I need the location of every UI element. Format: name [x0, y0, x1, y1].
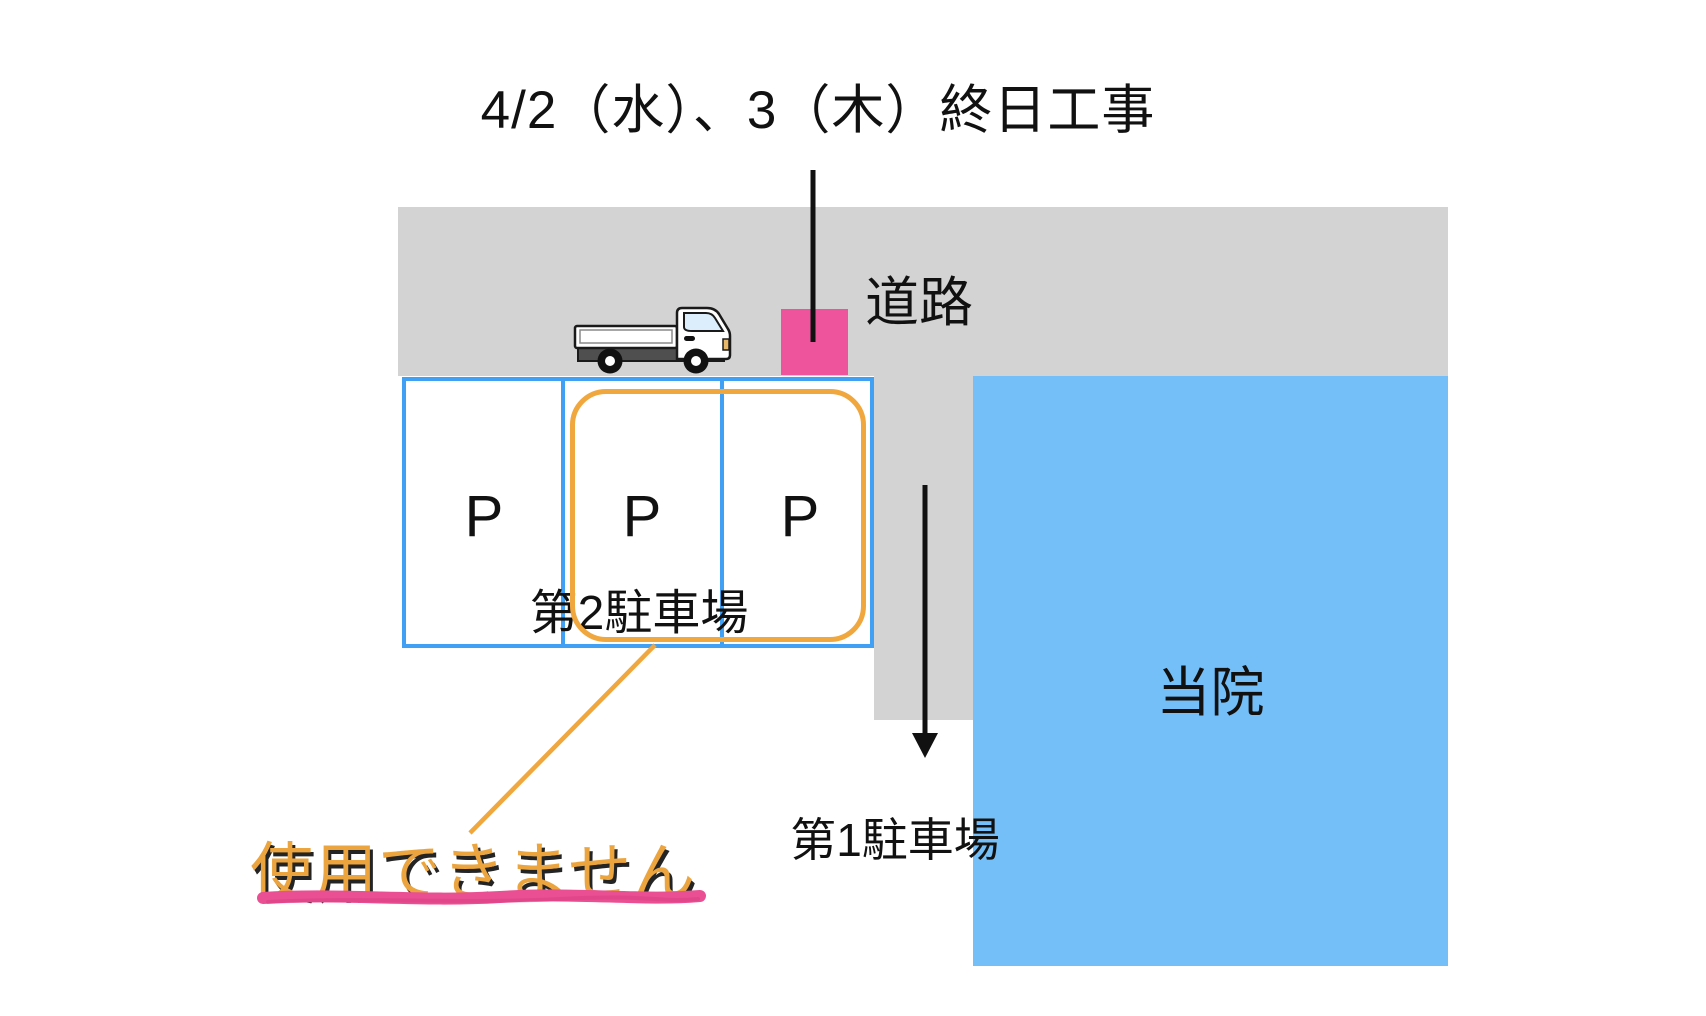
- driveway-area: [874, 376, 973, 720]
- clinic-building: 当院: [973, 376, 1448, 966]
- callout-line: [470, 645, 655, 833]
- truck-bed-rail: [580, 330, 672, 343]
- construction-marker: [781, 309, 848, 375]
- truck-icon: [572, 299, 738, 375]
- closed-spaces-highlight: [570, 389, 866, 642]
- construction-date-title: 4/2（水）、3（木）終日工事: [481, 68, 1156, 144]
- parking-space-1: P: [465, 483, 504, 550]
- road-label: 道路: [865, 258, 973, 337]
- truck-door-handle: [684, 336, 695, 341]
- clinic-label: 当院: [1157, 648, 1265, 727]
- truck-marker-light: [723, 339, 729, 350]
- parking-notice-diagram: 4/2（水）、3（木）終日工事 道路 P P P 第2駐車場 当院 第1駐車場 …: [0, 0, 1706, 1016]
- lot1-label: 第1駐車場: [790, 804, 1000, 870]
- warning-text: 使用できません: [250, 822, 696, 913]
